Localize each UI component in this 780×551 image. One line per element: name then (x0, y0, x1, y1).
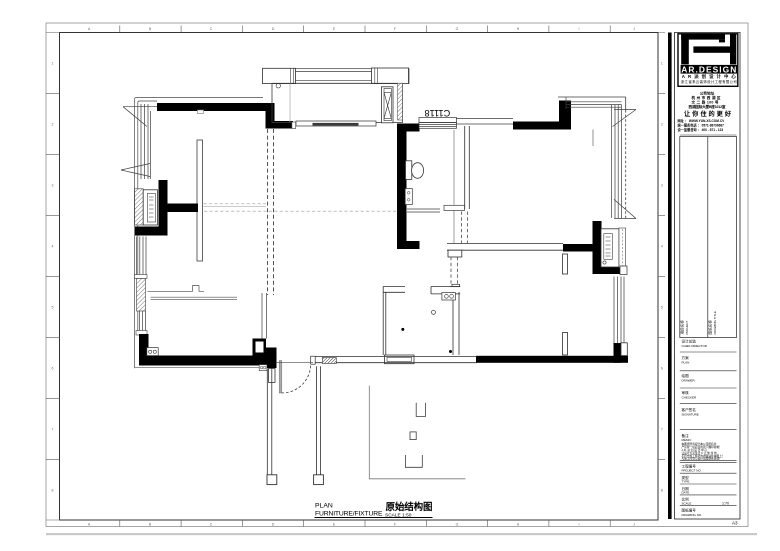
svg-text:浙江省禾云装饰设计工程有限公司: 浙江省禾云装饰设计工程有限公司 (681, 79, 737, 84)
svg-text:客户签名: 客户签名 (682, 407, 697, 412)
svg-text:J: J (633, 523, 635, 527)
svg-text:8: 8 (52, 489, 54, 493)
svg-text:4: 4 (52, 245, 54, 249)
svg-text:G: G (456, 27, 459, 31)
svg-text:图纸名称: 图纸名称 (708, 320, 713, 335)
svg-text:DATE: DATE (682, 491, 690, 495)
svg-text:公司地址: 公司地址 (700, 91, 715, 96)
svg-text:I: I (579, 523, 580, 527)
svg-text:网址 ： WWW.YUN-XS.COM.CV: 网址 ： WWW.YUN-XS.COM.CV (678, 118, 726, 123)
svg-text:杭 州 市 西 湖 区: 杭 州 市 西 湖 区 (691, 95, 721, 100)
svg-text:3: 3 (52, 184, 54, 188)
svg-text:审核: 审核 (682, 390, 690, 395)
svg-text:AR.DESIGN: AR.DESIGN (681, 64, 736, 74)
svg-text:5: 5 (661, 306, 663, 310)
svg-text:TYPE: TYPE (682, 480, 690, 484)
svg-text:统一服务电话 ： 0571-88796687: 统一服务电话 ： 0571-88796687 (678, 122, 725, 127)
svg-text:A3: A3 (732, 521, 738, 526)
svg-text:2: 2 (52, 123, 54, 127)
svg-text:2: 2 (661, 123, 663, 127)
svg-text:DRAWER: DRAWER (682, 379, 696, 383)
svg-text:西湖国际大厦B座1012室: 西湖国际大厦B座1012室 (689, 104, 726, 109)
svg-text:项目名称: 项目名称 (680, 320, 685, 335)
svg-text:SCALE: SCALE (682, 501, 692, 505)
svg-text:SIGNATURE: SIGNATURE (682, 413, 699, 417)
svg-text:方案: 方案 (682, 355, 690, 360)
svg-text:6: 6 (52, 367, 54, 371)
svg-text:C1118: C1118 (425, 108, 451, 118)
svg-text:1: 1 (52, 62, 54, 66)
svg-text:MEMO:: MEMO: (682, 438, 692, 442)
svg-text:PROJECT NO.: PROJECT NO. (682, 469, 702, 473)
svg-text:文 二 路 100 号: 文 二 路 100 号 (691, 100, 719, 105)
svg-text:1: 1 (661, 62, 663, 66)
svg-text:CHIEF DIRECTOR: CHIEF DIRECTOR (682, 344, 708, 348)
svg-text:F: F (394, 523, 396, 527)
svg-text:绘图: 绘图 (682, 373, 690, 378)
svg-text:7: 7 (661, 428, 663, 432)
svg-text:图纸编号: 图纸编号 (682, 508, 697, 513)
svg-text:G: G (456, 523, 459, 527)
svg-text:4: 4 (661, 245, 663, 249)
svg-text:PLAN: PLAN (315, 503, 333, 510)
svg-text:I: I (579, 27, 580, 31)
svg-text:CHECKER: CHECKER (682, 396, 698, 400)
svg-text:8: 8 (661, 489, 663, 493)
svg-text:PROJECT: PROJECT (685, 320, 689, 334)
svg-text:设一监督咨询 ： 400 - 871 - 123: 设一监督咨询 ： 400 - 871 - 123 (678, 127, 724, 132)
svg-text:5: 5 (52, 306, 54, 310)
svg-text:6: 6 (661, 367, 663, 371)
svg-text:原始结构图: 原始结构图 (386, 501, 433, 513)
svg-text:FURNITURE/FIXTURE: FURNITURE/FIXTURE (315, 511, 383, 518)
svg-text:DRAWING TITLE: DRAWING TITLE (713, 311, 717, 334)
svg-text:PLAN: PLAN (682, 361, 690, 365)
svg-text:SCALE 1:50: SCALE 1:50 (385, 513, 412, 519)
svg-text:7: 7 (52, 428, 54, 432)
svg-text:让 你 住 的 更 好: 让 你 住 的 更 好 (684, 110, 732, 118)
svg-text:J: J (633, 27, 635, 31)
svg-text:F: F (394, 27, 396, 31)
svg-text:1:70: 1:70 (722, 501, 729, 505)
svg-text:设计总监: 设计总监 (682, 339, 697, 344)
svg-text:3: 3 (661, 184, 663, 188)
svg-text:AR派创设计中心: AR派创设计中心 (682, 73, 737, 80)
svg-text:DRAWING NO.: DRAWING NO. (682, 513, 703, 517)
